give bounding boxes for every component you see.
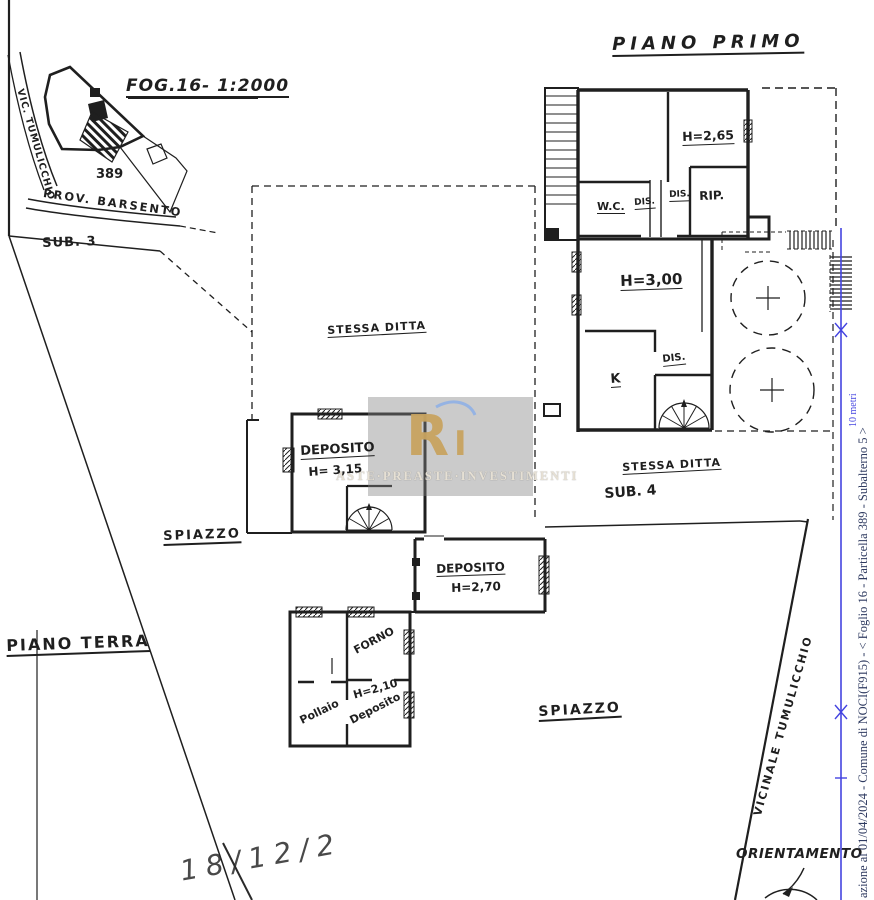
comb-hatch-top [790, 231, 830, 249]
deposito-270-height: H=2,70 [451, 580, 501, 594]
inset-building-hatched [80, 112, 128, 162]
spiral-staircase-upper [659, 399, 709, 428]
first-floor-plan [544, 88, 769, 432]
room-dis2-label: DIS. [669, 190, 690, 202]
room-k-label: K [610, 372, 621, 388]
deposito-270-name: DEPOSITO [436, 561, 505, 577]
scale-length-label: 10 metri [848, 393, 859, 427]
room-dis3-label: DIS. [662, 353, 686, 367]
room-wc-label: W.C. [597, 201, 625, 214]
watermark-text: ASTE·PREASTE·INVESTIMENTI [336, 469, 548, 484]
inset-parcel-number: 389 [96, 168, 123, 181]
inset-title: FOG.16- 1:2000 [126, 78, 289, 98]
stair-rungs [545, 96, 578, 204]
watermark-logo: R I [402, 399, 482, 461]
scale-bar [835, 228, 847, 900]
watermark-monogram-r: R [406, 404, 449, 461]
spiazzo-left-label: SPIAZZO [163, 527, 241, 546]
floor1-title: PIANO PRIMO [612, 33, 805, 57]
cadastral-caption: azione al 01/04/2024 - Comune di NOCI(F9… [856, 427, 871, 898]
sub4-label: SUB. 4 [604, 483, 657, 501]
deposito-315-height: H= 3,15 [308, 462, 363, 478]
room-h300-label: H=3,00 [620, 272, 683, 291]
road-vicinale [735, 519, 808, 900]
watermark-monogram-i: I [454, 424, 467, 461]
room-dis1-label: DIS. [634, 198, 655, 210]
sub3-label: SUB. 3 [42, 235, 97, 250]
orientamento-label: ORIENTAMENTO [736, 848, 863, 862]
room-rip-label: RIP. [699, 189, 724, 202]
spiral-staircase-lower [346, 503, 392, 530]
room-h265-label: H=2,65 [682, 129, 734, 145]
compass [765, 868, 817, 900]
cadastral-plan: R I ASTE·PREASTE·INVESTIMENTI FOG.16- 1:… [0, 0, 874, 900]
